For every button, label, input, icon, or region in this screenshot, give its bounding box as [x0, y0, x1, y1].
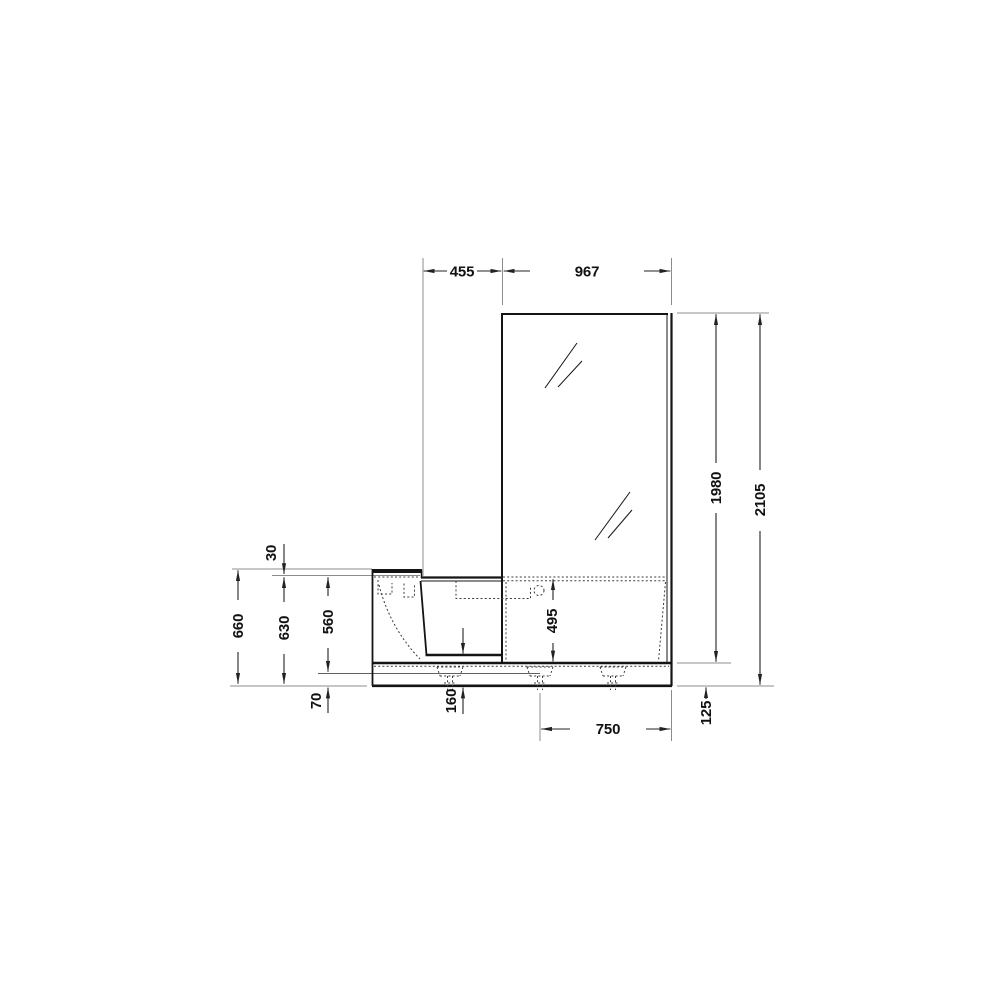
dim-2105: 2105 — [752, 314, 769, 684]
dimension-label-455: 455 — [450, 264, 474, 281]
dimension-label-2105: 2105 — [752, 484, 769, 517]
dimension-label-70: 70 — [308, 693, 325, 709]
dimension-label-1980: 1980 — [708, 472, 725, 505]
shower-screen-panel — [501, 313, 672, 686]
dimension-label-560: 560 — [320, 610, 337, 634]
dim-1980: 1980 — [708, 314, 725, 661]
dim-750: 750 — [541, 721, 670, 738]
dim-160: 160 — [443, 628, 463, 714]
dimension-label-630: 630 — [276, 616, 293, 640]
dimension-label-750: 750 — [596, 721, 620, 738]
glass-reflection-marks — [545, 343, 632, 540]
dimension-label-660: 660 — [230, 614, 247, 638]
dimension-label-967: 967 — [575, 264, 599, 281]
dim-495: 495 — [544, 579, 561, 661]
dim-660: 660 — [230, 570, 247, 683]
dim-70: 70 — [308, 688, 328, 713]
dim-967: 967 — [504, 264, 671, 281]
drain-circle — [534, 586, 544, 596]
hidden-lines — [374, 577, 669, 666]
dim-560: 560 — [320, 577, 337, 671]
technical-drawing-canvas: 455 967 1980 2105 125 30 660 630 560 — [0, 0, 1000, 1000]
dimension-label-125: 125 — [698, 701, 715, 725]
dim-455: 455 — [424, 264, 502, 281]
dimension-label-30: 30 — [263, 545, 280, 561]
dim-630: 630 — [276, 577, 293, 683]
drawing-page: 455 967 1980 2105 125 30 660 630 560 — [0, 0, 1000, 1000]
dimension-label-160: 160 — [443, 689, 460, 713]
dim-125: 125 — [698, 687, 715, 725]
dimension-label-495: 495 — [544, 609, 561, 633]
